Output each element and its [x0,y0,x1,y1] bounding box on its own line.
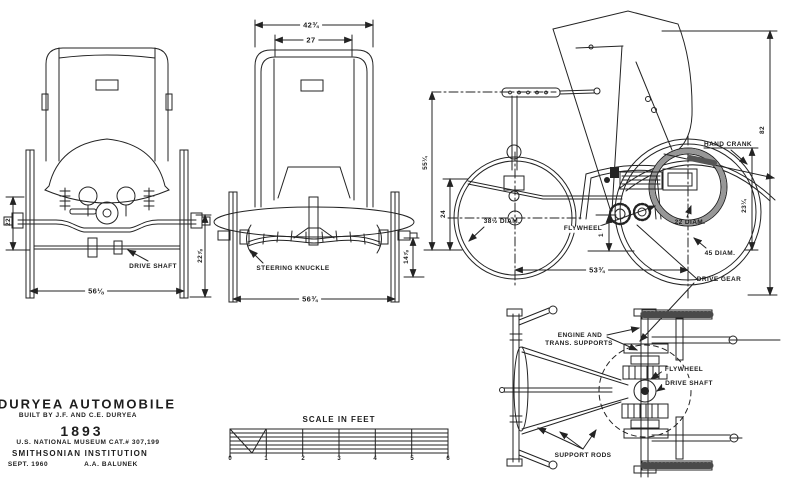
scale-tick-4: 4 [373,456,376,462]
drawing-catalog: U.S. NATIONAL MUSEUM CAT.# 307,199 [16,440,159,447]
blueprint-sheet: 22 22⅞ 56⅛ DRIVE SHAFT 42¾ 27 14⅞ 56¾ ST… [0,0,785,486]
drawing-date: SEPT. 1960 [8,462,48,469]
scale-tick-5: 5 [410,456,413,462]
dim-flywheel-diameter: 22 DIAM. [675,220,706,227]
scale-bar-drawing [230,429,448,457]
dim-front-wheel-diameter: 38½ DIAM. [484,219,520,226]
label-plan-drive-shaft: DRIVE SHAFT [662,381,716,388]
scale-tick-0: 0 [228,456,231,462]
rear-view-drawing [4,48,211,298]
drawing-built-by: BUILT BY J.F. AND C.E. DURYEA [19,413,137,420]
scale-tick-2: 2 [301,456,304,462]
front-view-drawing [214,20,424,302]
dim-rear-axle-height-left: 22 [6,218,13,226]
dim-side-front-hub-height: 24 [441,210,448,218]
label-plan-flywheel: FLYWHEEL [662,367,706,374]
plan-view-drawing [500,306,781,477]
drawing-title: DURYEA AUTOMOBILE [0,398,176,411]
side-view-drawing [424,11,777,341]
label-engine-supports-line2: TRANS. SUPPORTS [545,341,613,348]
dim-front-body-width: 42¾ [300,21,322,29]
scale-tick-3: 3 [337,456,340,462]
dim-front-seat-width: 27 [303,36,318,44]
dim-side-overall-height: 82 [760,126,767,134]
label-support-rods: SUPPORT RODS [555,453,612,460]
scale-bar-title: SCALE IN FEET [302,416,375,424]
label-rear-drive-shaft: DRIVE SHAFT [129,264,177,271]
drawing-year: 1893 [60,424,103,438]
scale-tick-1: 1 [264,456,267,462]
scale-tick-6: 6 [446,456,449,462]
dim-side-rear-hub-height: 23¼ [742,199,749,213]
drawing-drafter: A.A. BALUNEK [84,462,138,469]
drawing-institution: SMITHSONIAN INSTITUTION [12,450,148,458]
dim-front-axle-height: 14⅞ [404,250,411,264]
label-hand-crank: HAND CRANK [704,142,752,149]
dim-side-body-height: 55¼ [423,156,430,170]
label-side-flywheel: FLYWHEEL [561,226,605,233]
dim-rear-track-width: 56⅛ [85,287,107,295]
label-drive-gear: DRIVE GEAR [697,277,741,284]
dim-side-wheelbase: 53¾ [586,266,608,274]
label-steering-knuckle: STEERING KNUCKLE [256,266,329,273]
dim-rear-wheel-height-right: 22⅞ [198,249,205,263]
dim-front-track-width: 56¾ [299,295,321,303]
label-engine-supports-line1: ENGINE AND [558,333,603,340]
dim-rear-wheel-diameter: 45 DIAM. [705,251,736,258]
